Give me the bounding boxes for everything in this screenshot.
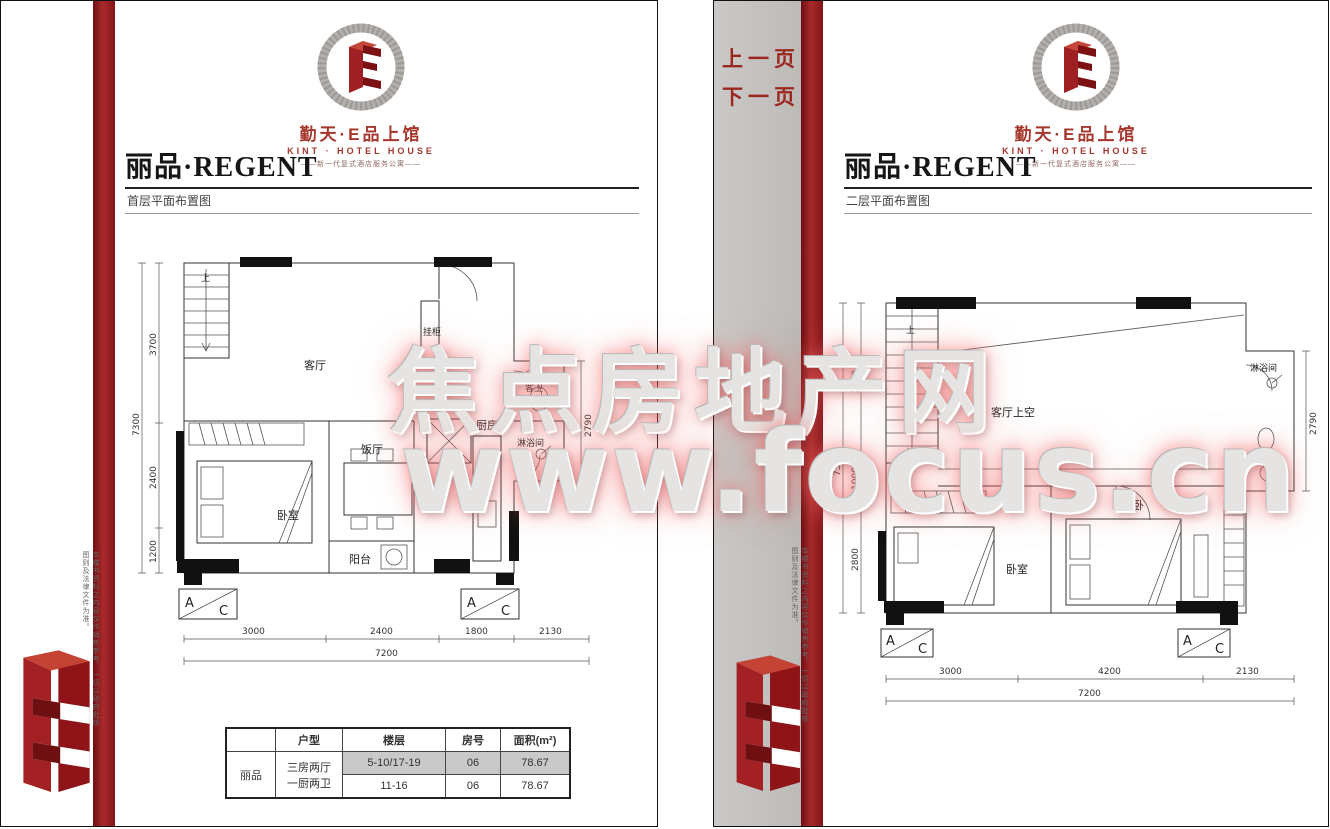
room-label-shower: 淋浴间: [517, 437, 544, 448]
ac-label: A: [185, 596, 194, 611]
brand-emblem-icon: [1030, 21, 1122, 113]
page-title: 丽品·REGENT: [844, 145, 1312, 189]
ac-label: C: [501, 604, 510, 619]
svg-text:2790: 2790: [1309, 412, 1319, 435]
ac-label: C: [219, 604, 228, 619]
page-first-floor: 本楼书资料之内容仅作销售参考，一切以政府批核图则及法律文件为准。 勤天·E品上馆…: [0, 0, 658, 827]
room-label-master-bath: 主卫: [1256, 450, 1274, 461]
floor-plan-second: A C A C 上 客厅上空 淋浴间 主卫 卧室 主卧 350: [826, 291, 1316, 726]
page-subtitle: 二层平面布置图: [844, 189, 1312, 214]
cell-floors: 5-10/17-19: [343, 752, 446, 775]
svg-text:3500: 3500: [851, 370, 861, 393]
cell-room-no: 06: [446, 775, 501, 799]
room-label-cabinet: 挂柜: [423, 326, 441, 337]
room-label-bedroom: 卧室: [277, 508, 299, 522]
group-label-cell: 丽品: [226, 752, 276, 799]
room-labels: 上 客厅上空 淋浴间 主卫 卧室 主卧: [906, 325, 1277, 576]
ac-label: A: [467, 596, 476, 611]
room-label-shower: 淋浴间: [1250, 362, 1277, 373]
stair-up-label: 上: [906, 325, 915, 335]
svg-text:2130: 2130: [1236, 667, 1259, 677]
col-header: 面积(m²): [501, 728, 571, 752]
unit-type-cell: 三房两厅 一厨两卫: [276, 752, 343, 799]
floor-plan-first: A C A C 上 客厅 挂柜 客卫 淋浴间 饭厅 厨房 卧室 阳台: [129, 251, 599, 686]
room-label-bedroom: 卧室: [1006, 562, 1028, 576]
page-navigation: 上一页 下一页: [722, 35, 796, 119]
svg-text:7200: 7200: [1078, 689, 1101, 699]
table-corner-cell: [226, 728, 276, 752]
structural-walls: [878, 297, 1238, 625]
svg-text:1000: 1000: [851, 467, 861, 490]
svg-text:7300: 7300: [833, 453, 843, 476]
table-row: 丽品 三房两厅 一厨两卫 5-10/17-19 06 78.67: [226, 752, 570, 775]
unit-type-line: 三房两厅: [281, 759, 337, 775]
svg-text:2400: 2400: [149, 466, 159, 489]
room-label-balcony: 阳台: [349, 552, 371, 566]
cell-floors: 11-16: [343, 775, 446, 799]
room-label-living: 客厅: [304, 358, 326, 372]
page-title: 丽品·REGENT: [125, 145, 639, 189]
walls: [184, 263, 564, 573]
brand-name-cn: 勤天·E品上馆: [241, 120, 481, 145]
room-labels: 上 客厅 挂柜 客卫 淋浴间 饭厅 厨房 卧室 阳台: [201, 273, 544, 566]
col-header: 户型: [276, 728, 343, 752]
ac-label: A: [1183, 634, 1192, 649]
svg-text:2790: 2790: [584, 414, 594, 437]
svg-text:3000: 3000: [939, 667, 962, 677]
svg-text:1200: 1200: [149, 540, 159, 563]
ac-boxes: A C A C: [179, 589, 519, 619]
ac-label: C: [1215, 642, 1224, 657]
disclaimer-note: 本楼书资料之内容仅作销售参考，一切以政府批核图则及法律文件为准。: [789, 547, 809, 727]
svg-text:2130: 2130: [539, 627, 562, 637]
page-second-floor: 上一页 下一页 本楼书资料之内容仅作销售参考，一切以政府批核图则及法律文件为准。: [713, 0, 1329, 827]
unit-type-line: 一厨两卫: [281, 775, 337, 791]
cell-room-no: 06: [446, 752, 501, 775]
title-block: 丽品·REGENT 首层平面布置图: [125, 145, 639, 214]
svg-text:3700: 3700: [149, 333, 159, 356]
brochure-spread: 本楼书资料之内容仅作销售参考，一切以政府批核图则及法律文件为准。 勤天·E品上馆…: [0, 0, 1330, 829]
title-block: 丽品·REGENT 二层平面布置图: [844, 145, 1312, 214]
brand-emblem-icon: [315, 21, 407, 113]
svg-text:3000: 3000: [242, 627, 265, 637]
prev-page-link[interactable]: 上一页: [722, 43, 796, 73]
unit-info-table: 户型 楼层 房号 面积(m²) 丽品 三房两厅 一厨两卫 5-10/17-19 …: [225, 727, 571, 799]
room-label-dining: 饭厅: [361, 443, 383, 456]
room-label-living-void: 客厅上空: [991, 405, 1035, 419]
next-page-link[interactable]: 下一页: [722, 81, 796, 111]
room-label-master-bedroom: 主卧: [1122, 499, 1144, 512]
furniture: [189, 370, 551, 569]
disclaimer-note: 本楼书资料之内容仅作销售参考，一切以政府批核图则及法律文件为准。: [80, 551, 100, 731]
cell-area: 78.67: [501, 752, 571, 775]
svg-text:7300: 7300: [132, 413, 142, 436]
room-label-kitchen: 厨房: [476, 419, 498, 432]
svg-text:2400: 2400: [370, 627, 393, 637]
brand-name-cn: 勤天·E品上馆: [956, 120, 1196, 145]
svg-text:2800: 2800: [851, 548, 861, 571]
table-header-row: 户型 楼层 房号 面积(m²): [226, 728, 570, 752]
svg-text:7200: 7200: [375, 649, 398, 659]
cell-area: 78.67: [501, 775, 571, 799]
ac-label: C: [918, 642, 927, 657]
stair-up-label: 上: [201, 273, 210, 283]
ac-label: A: [886, 634, 895, 649]
page-subtitle: 首层平面布置图: [125, 189, 639, 214]
room-label-guest-bath: 客卫: [525, 382, 543, 393]
col-header: 房号: [446, 728, 501, 752]
ac-boxes: A C A C: [881, 629, 1230, 657]
svg-text:1800: 1800: [465, 627, 488, 637]
col-header: 楼层: [343, 728, 446, 752]
svg-text:4200: 4200: [1098, 667, 1121, 677]
